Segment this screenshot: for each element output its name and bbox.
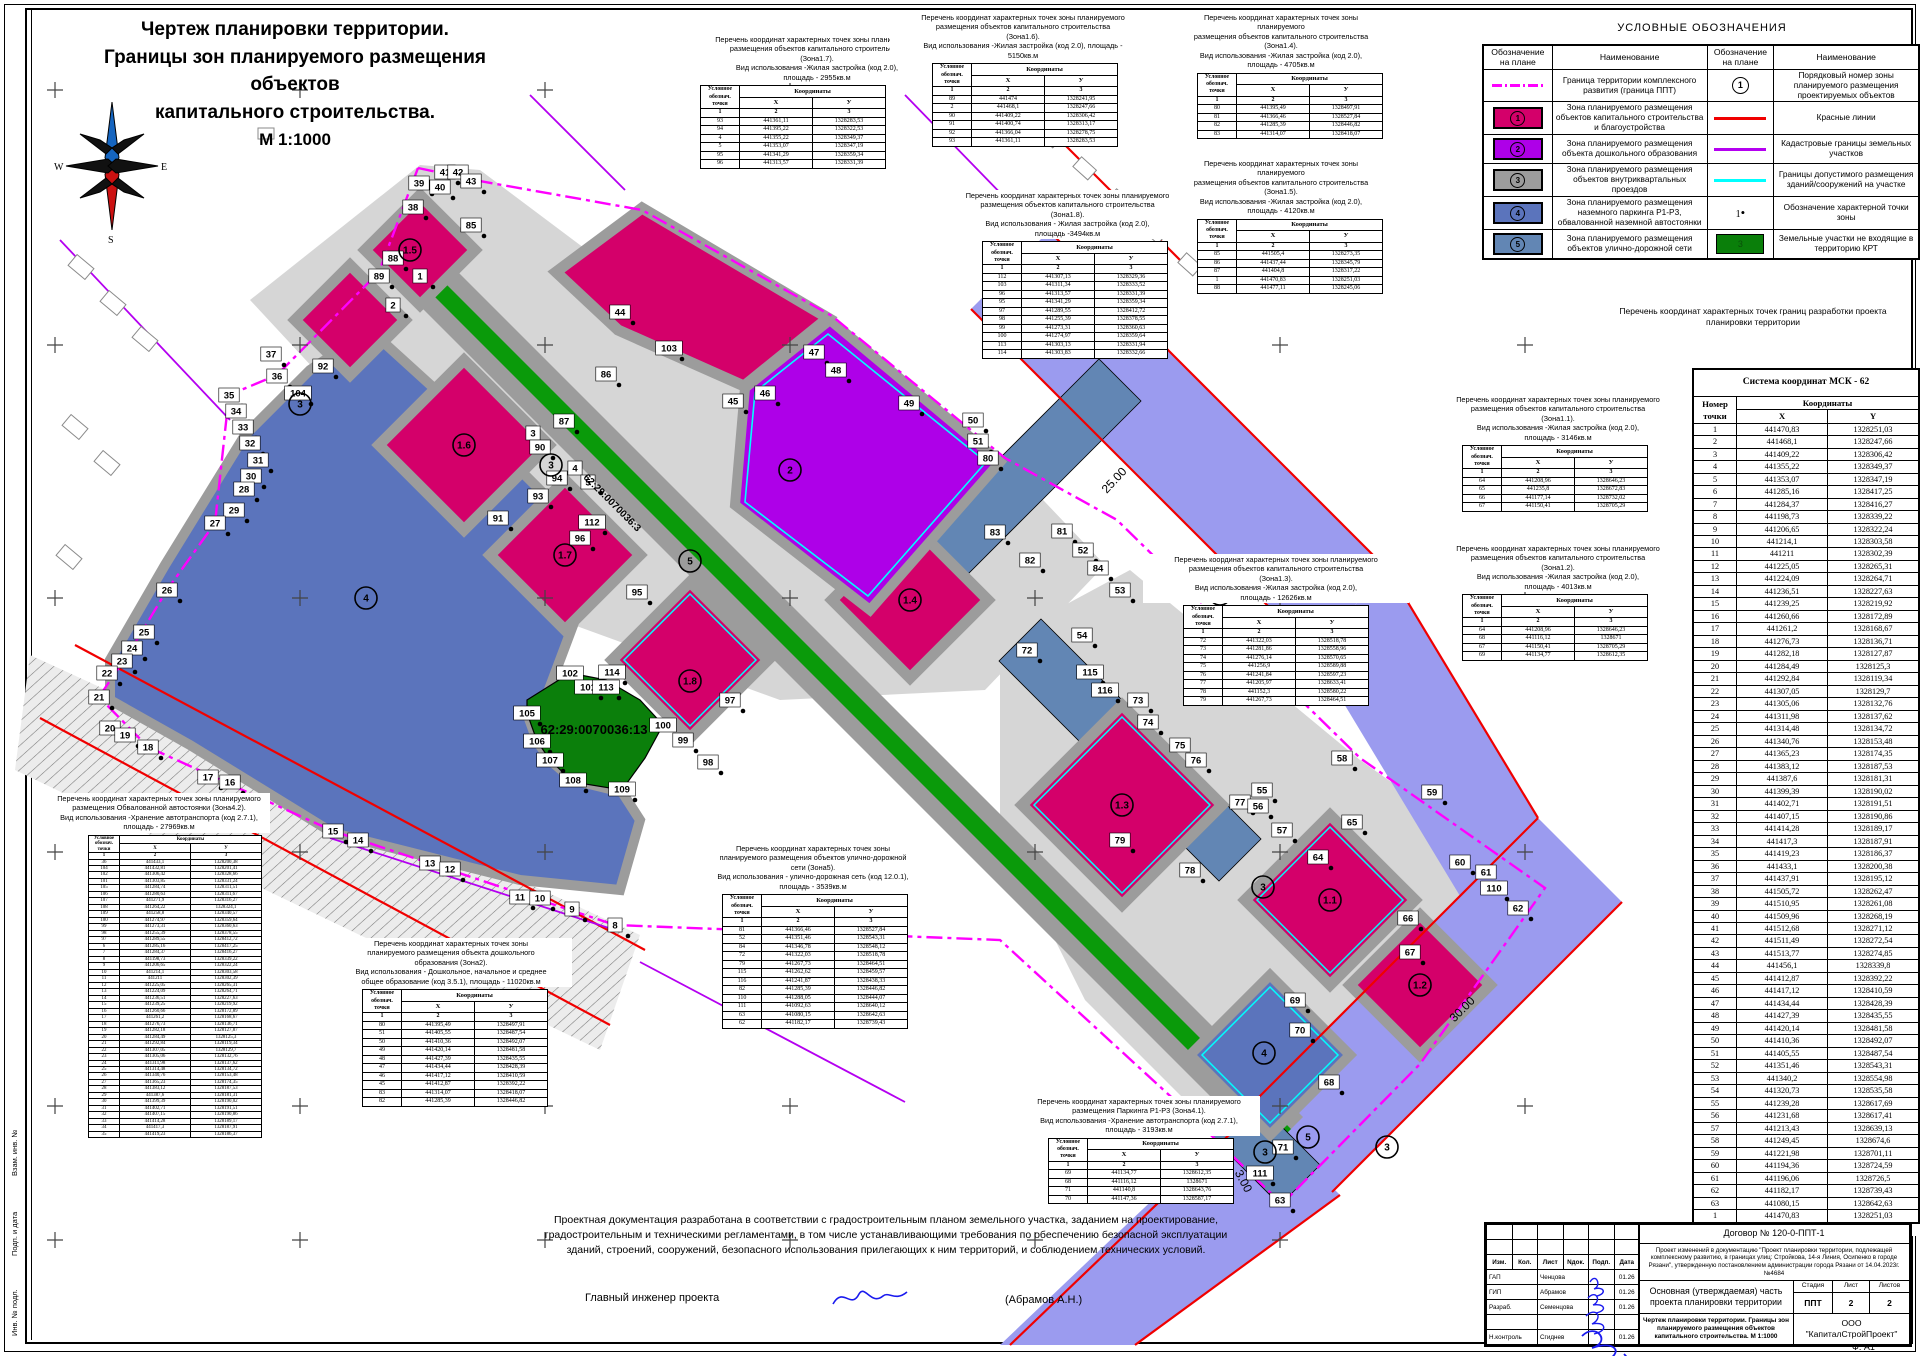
coord-table-grid: Условное обознач. точкиКоординатыXУ12389…: [932, 63, 1118, 146]
coord-table-grid: Условное обознач. точкиКоординатыXУ12380…: [362, 989, 548, 1106]
map-point-label: 82: [1020, 553, 1040, 567]
coord-table-title: Перечень координат характерных точек зон…: [1183, 12, 1379, 71]
svg-text:62: 62: [1513, 904, 1524, 915]
map-point-label: 65: [1342, 815, 1362, 829]
boundary-point-dot: [1149, 709, 1154, 714]
boundary-point-dot: [133, 670, 138, 675]
svg-text:8: 8: [612, 921, 617, 932]
map-point-label: 77: [1230, 795, 1250, 809]
svg-text:1.8: 1.8: [683, 677, 697, 688]
svg-text:28: 28: [239, 485, 250, 496]
boundary-point-dot: [178, 599, 183, 604]
coord-table-zona1-2: Перечень координат характерных точек зон…: [1428, 543, 1688, 661]
svg-text:73: 73: [1133, 696, 1144, 707]
boundary-point-dot: [159, 756, 164, 761]
svg-text:50: 50: [968, 416, 979, 427]
map-point-label: 31: [248, 453, 268, 467]
map-point-label: 50: [963, 413, 983, 427]
boundary-point-dot: [461, 878, 466, 883]
map-point-label: 10: [530, 891, 550, 905]
svg-text:25: 25: [139, 628, 150, 639]
stamp-subtitle: Чертеж планировки территории. Границы зо…: [1638, 1313, 1794, 1345]
svg-text:54: 54: [1077, 631, 1088, 642]
svg-text:63: 63: [1275, 1196, 1286, 1207]
coord-table-title: Перечень координат характерных точек зон…: [48, 793, 270, 833]
svg-text:9: 9: [569, 905, 574, 916]
boundary-point-dot: [1131, 849, 1136, 854]
boundary-point-dot: [1269, 815, 1274, 820]
compass-w: W: [54, 162, 64, 173]
boundary-point-dot: [155, 641, 160, 646]
svg-text:84: 84: [1093, 564, 1104, 575]
coord-table-grid: Условное обознач. точкиКоординатыXУ12336…: [88, 835, 262, 1138]
grid-cross: [1517, 337, 1533, 353]
svg-text:3: 3: [297, 400, 303, 411]
svg-text:79: 79: [1115, 836, 1126, 847]
boundary-point-dot: [1363, 831, 1368, 836]
svg-text:36: 36: [272, 372, 283, 383]
map-point-label: 16: [220, 775, 240, 789]
svg-text:106: 106: [529, 737, 545, 748]
svg-text:26: 26: [162, 586, 173, 597]
map-point-label: 29: [224, 503, 244, 517]
map-point-label: 11: [510, 890, 530, 904]
coord-table-title: Перечень координат характерных точек зон…: [1428, 394, 1688, 443]
coord-table-title: Перечень координат характерных точек зон…: [1428, 543, 1688, 592]
map-point-label: 83: [985, 525, 1005, 539]
boundary-point-dot: [1273, 799, 1278, 804]
boundary-point-dot: [549, 505, 554, 510]
svg-text:12: 12: [445, 865, 456, 876]
svg-text:113: 113: [598, 683, 613, 694]
map-point-label: 97: [720, 693, 740, 707]
map-point-label: 19: [115, 728, 135, 742]
boundary-point-dot: [404, 314, 409, 319]
svg-text:1.7: 1.7: [558, 551, 572, 562]
svg-text:90: 90: [535, 443, 546, 454]
chief-engineer-label: Главный инженер проекта: [585, 1292, 719, 1304]
map-point-label: 79: [1110, 833, 1130, 847]
map-point-label: 28: [234, 482, 254, 496]
svg-text:2: 2: [390, 301, 395, 312]
svg-text:55: 55: [1257, 786, 1268, 797]
map-point-label: 47: [804, 345, 824, 359]
coord-table-grid: Условное обознач. точкиКоординатыXУ12372…: [1183, 605, 1369, 705]
boundary-point-dot: [1443, 801, 1448, 806]
boundary-point-dot: [482, 234, 487, 239]
map-point-label: 67: [1400, 945, 1420, 959]
map-point-label: 55: [1252, 783, 1272, 797]
grid-cross: [537, 82, 553, 98]
svg-text:15: 15: [328, 827, 339, 838]
svg-text:67: 67: [1405, 948, 1416, 959]
svg-text:96: 96: [575, 534, 586, 545]
coord-table-zona1-6: Перечень координат характерных точек зон…: [890, 12, 1156, 147]
svg-text:105: 105: [519, 709, 536, 720]
cadastral-number: 62:29:0070036:13: [541, 722, 648, 737]
boundary-point-dot: [509, 527, 514, 532]
svg-text:97: 97: [725, 696, 736, 707]
map-point-label: 22: [97, 666, 117, 680]
svg-text:30: 30: [246, 472, 257, 483]
svg-text:64: 64: [1313, 853, 1324, 864]
map-point-label: 112: [579, 515, 606, 529]
boundary-point-dot: [456, 181, 461, 186]
boundary-point-dot: [282, 363, 287, 368]
boundary-point-dot: [999, 467, 1004, 472]
coord-table-zona4-1: Перечень координат характерных точек зон…: [1018, 1096, 1260, 1204]
svg-text:82: 82: [1025, 556, 1036, 567]
svg-text:110: 110: [1486, 884, 1501, 895]
coord-table-zona5: Перечень координат характерных точек зон…: [695, 843, 931, 1029]
boundary-point-dot: [847, 379, 852, 384]
boundary-point-dot: [1093, 644, 1098, 649]
coord-table-title: Перечень координат характерных точек зон…: [1143, 554, 1409, 603]
svg-text:75: 75: [1175, 741, 1186, 752]
frame-label-inv: Инв. № подл.: [10, 1289, 19, 1336]
svg-text:59: 59: [1427, 788, 1438, 799]
map-point-label: 32: [240, 436, 260, 450]
map-point-label: 21: [89, 690, 109, 704]
svg-text:17: 17: [203, 773, 214, 784]
map-point-label: 48: [826, 363, 846, 377]
map-point-label: 110: [1481, 881, 1508, 895]
map-point-label: 99: [673, 733, 693, 747]
boundary-point-dot: [551, 907, 556, 912]
boundary-point-dot: [741, 709, 746, 714]
boundary-point-dot: [648, 601, 653, 606]
boundary-point-dot: [334, 375, 339, 380]
boundary-point-dot: [1306, 1009, 1311, 1014]
svg-text:22: 22: [102, 669, 113, 680]
boundary-point-dot: [531, 906, 536, 911]
svg-text:78: 78: [1185, 866, 1196, 877]
coord-table-zona1-4: Перечень координат характерных точек зон…: [1183, 12, 1383, 139]
svg-text:69: 69: [1290, 996, 1301, 1007]
svg-text:24: 24: [127, 644, 138, 655]
map-point-label: 39: [409, 176, 429, 190]
coord-table-grid: Условное обознач. точкиКоординатыXУ12393…: [700, 85, 886, 168]
boundary-point-dot: [1109, 577, 1114, 582]
svg-text:108: 108: [565, 776, 581, 787]
boundary-point-dot: [568, 487, 573, 492]
svg-text:70: 70: [1295, 1026, 1306, 1037]
svg-text:1.5: 1.5: [403, 246, 417, 257]
boundary-point-dot: [1293, 839, 1298, 844]
map-point-label: 35: [219, 388, 239, 402]
svg-text:5: 5: [1305, 1133, 1311, 1144]
map-point-label: 62: [1508, 901, 1528, 915]
boundary-point-dot: [110, 706, 115, 711]
svg-text:47: 47: [809, 348, 820, 359]
svg-text:16: 16: [225, 778, 236, 789]
map-point-label: 8: [608, 918, 622, 932]
svg-text:100: 100: [655, 721, 671, 732]
map-point-label: 3: [526, 426, 540, 440]
coord-table-zona2: Перечень координат характерных точек зон…: [330, 938, 572, 1107]
svg-text:52: 52: [1078, 546, 1089, 557]
svg-text:77: 77: [1235, 798, 1246, 809]
map-point-label: 74: [1138, 715, 1158, 729]
svg-text:114: 114: [604, 668, 620, 679]
boundary-point-dot: [719, 771, 724, 776]
map-point-label: 2: [386, 298, 400, 312]
boundary-point-dot: [1271, 1182, 1276, 1187]
boundary-point-dot: [1116, 699, 1121, 704]
boundary-point-dot: [482, 190, 487, 195]
svg-text:53: 53: [1115, 586, 1126, 597]
svg-text:74: 74: [1143, 718, 1154, 729]
coord-table-title: Перечень координат характерных точек зон…: [948, 190, 1187, 239]
boundary-point-dot: [404, 267, 409, 272]
contract-number: Договор № 120-0-ППТ-1: [1638, 1224, 1910, 1244]
svg-text:3: 3: [548, 461, 554, 472]
boundary-point-dot: [631, 321, 636, 326]
coord-table-title: Перечень координат характерных точек зон…: [695, 843, 931, 892]
master-table-caption: Перечень координат характерных точек гра…: [1602, 306, 1904, 329]
svg-text:1.4: 1.4: [903, 596, 917, 607]
svg-text:2: 2: [787, 466, 793, 477]
svg-text:57: 57: [1277, 826, 1288, 837]
map-point-label: 53: [1110, 583, 1130, 597]
svg-text:1.3: 1.3: [1115, 801, 1129, 812]
map-point-label: 86: [596, 367, 616, 381]
map-point-label: 90: [530, 440, 550, 454]
map-point-label: 70: [1290, 1023, 1310, 1037]
svg-text:39: 39: [414, 179, 425, 190]
boundary-point-dot: [920, 412, 925, 417]
map-point-label: 37: [261, 347, 281, 361]
map-point-label: 34: [226, 404, 246, 418]
coord-table-title: Перечень координат характерных точек зон…: [890, 12, 1156, 61]
boundary-point-dot: [245, 519, 250, 524]
grid-cross: [782, 1098, 798, 1114]
boundary-point-dot: [744, 410, 749, 415]
boundary-point-dot: [1201, 879, 1206, 884]
boundary-point-dot: [262, 485, 267, 490]
svg-text:89: 89: [374, 272, 385, 283]
map-point-label: 95: [627, 585, 647, 599]
boundary-point-dot: [623, 681, 628, 686]
svg-text:46: 46: [760, 389, 771, 400]
master-coordinates-table: Система координат МСК - 62Номер точкиКоо…: [1692, 368, 1920, 1236]
svg-text:72: 72: [1022, 646, 1033, 657]
svg-text:3: 3: [1384, 1143, 1390, 1154]
map-point-label: 102: [557, 666, 584, 680]
svg-text:91: 91: [493, 514, 504, 525]
drawing-sheet: 3940414243388588891292373610435343332313…: [0, 0, 1920, 1356]
coord-table-grid: Условное обознач. точкиКоординатыXУ12369…: [1048, 1138, 1234, 1204]
map-point-label: 68: [1319, 1075, 1339, 1089]
frame-label-podp: Подп. и дата: [10, 1212, 19, 1256]
boundary-point-dot: [617, 383, 622, 388]
boundary-point-dot: [255, 498, 260, 503]
map-point-label: 80: [978, 451, 998, 465]
boundary-point-dot: [984, 429, 989, 434]
svg-text:1: 1: [417, 272, 423, 283]
svg-text:56: 56: [1253, 802, 1264, 813]
boundary-point-dot: [1159, 731, 1164, 736]
legend-title: УСЛОВНЫЕ ОБОЗНАЧЕНИЯ: [1592, 22, 1812, 34]
zone-number-circle: 3: [1376, 1136, 1398, 1158]
svg-text:27: 27: [210, 519, 221, 530]
svg-text:4: 4: [572, 464, 578, 475]
coord-table-zona1-3: Перечень координат характерных точек зон…: [1143, 554, 1409, 706]
map-point-label: 75: [1170, 738, 1190, 752]
compass-s: S: [108, 235, 114, 246]
map-point-label: 116: [1092, 683, 1119, 697]
boundary-point-dot: [626, 934, 631, 939]
svg-text:65: 65: [1347, 818, 1358, 829]
map-point-label: 4: [568, 461, 582, 475]
map-point-label: 26: [157, 583, 177, 597]
coord-table-grid: Условное обознач. точкиКоординатыXУ12364…: [1462, 594, 1648, 660]
legend: Обозначение на планеНаименованиеОбозначе…: [1482, 44, 1920, 260]
svg-text:29: 29: [229, 506, 240, 517]
svg-text:76: 76: [1191, 756, 1202, 767]
map-point-label: 13: [420, 856, 440, 870]
grid-cross: [1272, 337, 1288, 353]
svg-text:58: 58: [1337, 754, 1348, 765]
coord-table-zona1-5: Перечень координат характерных точек зон…: [1183, 158, 1383, 294]
chief-engineer-name: (Абрамов А.Н.): [1005, 1294, 1082, 1306]
map-point-label: 94: [547, 471, 567, 485]
map-point-label: 76: [1186, 753, 1206, 767]
svg-text:18: 18: [143, 743, 154, 754]
svg-text:109: 109: [614, 785, 630, 796]
map-point-label: 12: [440, 862, 460, 876]
map-point-label: 105: [514, 706, 541, 720]
map-point-label: 107: [537, 753, 564, 767]
boundary-point-dot: [575, 430, 580, 435]
svg-text:13: 13: [425, 859, 436, 870]
coord-table-zona1-1: Перечень координат характерных точек зон…: [1428, 394, 1688, 512]
svg-text:112: 112: [584, 518, 599, 529]
boundary-point-dot: [583, 918, 588, 923]
svg-text:19: 19: [120, 731, 131, 742]
svg-text:87: 87: [559, 417, 570, 428]
boundary-point-dot: [1041, 569, 1046, 574]
boundary-point-dot: [143, 657, 148, 662]
svg-text:3: 3: [530, 429, 535, 440]
boundary-point-dot: [1353, 767, 1358, 772]
boundary-point-dot: [269, 469, 274, 474]
map-point-label: 98: [698, 755, 718, 769]
map-point-label: 63: [1270, 1193, 1290, 1207]
map-point-label: 59: [1422, 785, 1442, 799]
map-point-label: 51: [968, 434, 988, 448]
svg-text:33: 33: [238, 423, 249, 434]
project-description: Проект изменений в документацию "Проект …: [1638, 1243, 1910, 1281]
svg-text:45: 45: [728, 397, 739, 408]
map-point-label: 96: [570, 531, 590, 545]
map-point-label: 84: [1088, 561, 1108, 575]
svg-text:60: 60: [1455, 858, 1466, 869]
svg-text:51: 51: [973, 437, 984, 448]
coord-table-grid: Условное обознач. точкиКоординатыXУ12364…: [1462, 445, 1648, 511]
boundary-point-dot: [424, 216, 429, 221]
svg-text:1.2: 1.2: [1413, 981, 1427, 992]
svg-text:32: 32: [245, 439, 256, 450]
map-point-label: 87: [554, 414, 574, 428]
svg-text:81: 81: [1057, 527, 1068, 538]
map-point-label: 49: [899, 396, 919, 410]
boundary-point-dot: [1291, 1209, 1296, 1214]
svg-text:1.1: 1.1: [1323, 896, 1337, 907]
svg-text:34: 34: [231, 407, 242, 418]
boundary-point-dot: [451, 196, 456, 201]
map-point-label: 91: [488, 511, 508, 525]
grid-cross: [47, 1232, 63, 1248]
grid-cross: [47, 337, 63, 353]
svg-text:61: 61: [1481, 868, 1492, 879]
svg-text:43: 43: [466, 177, 477, 188]
boundary-point-dot: [680, 357, 685, 362]
sheet-value: 2: [1832, 1292, 1870, 1314]
svg-text:49: 49: [904, 399, 915, 410]
map-point-label: 44: [610, 305, 630, 319]
map-point-label: 58: [1332, 751, 1352, 765]
map-point-label: 14: [348, 833, 368, 847]
sheets-value: 2: [1869, 1292, 1910, 1314]
svg-text:3: 3: [1262, 1148, 1268, 1159]
boundary-point-dot: [118, 682, 123, 687]
svg-text:31: 31: [253, 456, 264, 467]
map-point-label: 27: [205, 516, 225, 530]
svg-text:66: 66: [1403, 914, 1414, 925]
boundary-point-dot: [1207, 769, 1212, 774]
svg-text:40: 40: [435, 183, 446, 194]
svg-text:35: 35: [224, 391, 235, 402]
map-point-label: 57: [1272, 823, 1292, 837]
grid-cross: [292, 1098, 308, 1114]
svg-text:38: 38: [408, 203, 419, 214]
svg-text:4: 4: [1261, 1049, 1267, 1060]
svg-text:4: 4: [363, 594, 369, 605]
map-point-label: 24: [122, 641, 142, 655]
boundary-point-dot: [1340, 1091, 1345, 1096]
svg-text:95: 95: [632, 588, 643, 599]
svg-text:5: 5: [687, 557, 693, 568]
dimension-label: 25.00: [1099, 464, 1130, 496]
map-point-label: 25: [134, 625, 154, 639]
stamp-signatures: Изм.Кол.ЛистNдок.Подп.ДатаГАПЧенцова01.2…: [1486, 1224, 1640, 1345]
map-point-label: 52: [1073, 543, 1093, 557]
boundary-point-dot: [633, 798, 638, 803]
chief-engineer-line: Главный инженер проекта (Абрамов А.Н.): [585, 1292, 1235, 1304]
boundary-point-dot: [1038, 659, 1043, 664]
boundary-point-dot: [390, 285, 395, 290]
map-point-label: 72: [1017, 643, 1037, 657]
map-point-label: 108: [560, 773, 587, 787]
grid-cross: [292, 1232, 308, 1248]
map-point-label: 109: [609, 782, 636, 796]
svg-text:86: 86: [601, 370, 612, 381]
boundary-point-dot: [561, 769, 566, 774]
map-point-label: 114: [599, 665, 626, 679]
coord-table-title: Перечень координат характерных точек зон…: [1018, 1096, 1260, 1136]
svg-text:107: 107: [542, 756, 558, 767]
svg-text:115: 115: [1082, 668, 1098, 679]
boundary-point-dot: [1294, 1156, 1299, 1161]
map-point-label: 81: [1052, 524, 1072, 538]
map-point-label: 43: [461, 174, 481, 188]
map-point-label: 92: [313, 359, 333, 373]
coord-table-grid: Условное обознач. точкиКоординатыXУ12311…: [982, 241, 1168, 358]
svg-text:14: 14: [353, 836, 364, 847]
coord-table-grid: Условное обознач. точкиКоординатыXУ12381…: [722, 894, 908, 1028]
svg-text:98: 98: [703, 758, 714, 769]
